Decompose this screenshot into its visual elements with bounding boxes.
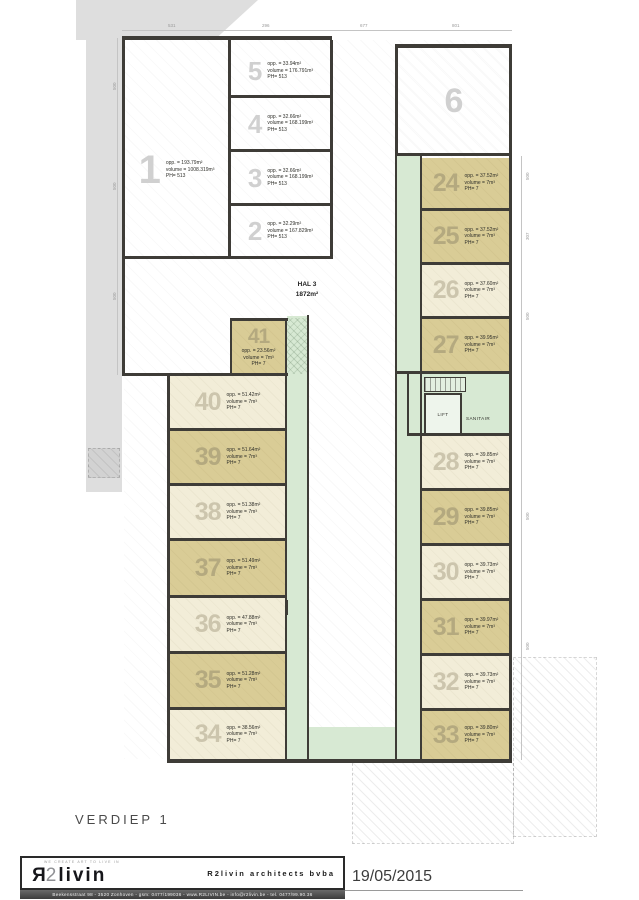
unit-36-spec-line: volume = 7m³ [227,621,261,628]
unit-34-spec-line: volume = 7m³ [227,731,261,738]
unit-31-specs: opp. = 39.97m²volume = 7m³PH= 7 [465,617,499,637]
dim-line-top [122,30,512,31]
unit-37-spec-line: opp. = 51.49m² [227,558,261,565]
dim-top-label: 531 [168,23,176,28]
unit-37-room: 37opp. = 51.49m²volume = 7m³PH= 7 [170,541,285,595]
unit-38-number: 38 [195,500,221,525]
stair-left-corridor [287,318,308,374]
lift-label: LIFT [437,412,448,417]
unit-38-specs: opp. = 51.38m²volume = 7m³PH= 7 [227,502,261,522]
unit-5-room: 5opp. = 33.94m²volume = 176.791m³PH= 513 [231,47,330,95]
unit-24-spec-line: opp. = 37.52m² [465,173,499,180]
unit-25-specs: opp. = 37.52m²volume = 7m³PH= 7 [465,227,499,247]
logo-letter-r: R [30,866,46,885]
unit-32-spec-line: PH= 7 [465,685,499,692]
unit-33-spec-line: opp. = 39.80m² [465,725,499,732]
unit-32-number: 32 [433,670,459,695]
unit-36-number: 36 [195,612,221,637]
unit-34-number: 34 [195,722,221,747]
unit-4-spec-line: PH= 513 [267,127,313,134]
wall-segment [509,44,512,763]
unit-32-spec-line: opp. = 39.73m² [465,672,499,679]
unit-33-spec-line: PH= 7 [465,738,499,745]
wall-segment [330,40,333,259]
wall-segment [167,707,287,710]
unit-5-spec-line: PH= 513 [267,74,313,81]
address-strip: Beekensstraat 98 - 3520 Zonhoven - gsm: … [20,890,345,899]
unit-41-room: 41opp. = 23.56m²volume = 7m³PH= 7 [232,321,285,373]
logo-letter-2: 2 [46,865,59,886]
dim-left-label: 500 [112,292,117,300]
unit-24-specs: opp. = 37.52m²volume = 7m³PH= 7 [465,173,499,193]
unit-35-spec-line: volume = 7m³ [227,677,261,684]
hall-name: HAL 3 [262,280,352,290]
unit-34-spec-line: PH= 7 [227,738,261,745]
wall-segment [420,598,512,601]
unit-28-spec-line: opp. = 39.85m² [465,452,499,459]
unit-29-number: 29 [433,505,459,530]
firm-logo: WE CREATE ART TO LIVE IN R2livin [30,861,120,885]
unit-38-room: 38opp. = 51.38m²volume = 7m³PH= 7 [170,486,285,538]
unit-32-specs: opp. = 39.73m²volume = 7m³PH= 7 [465,672,499,692]
unit-25-number: 25 [433,224,459,249]
unit-1-specs: opp. = 193.79m²volume = 1008.319m³PH= 51… [166,160,215,180]
unit-39-spec-line: opp. = 51.64m² [227,447,261,454]
unit-2-number: 2 [248,218,261,244]
unit-6-number: 6 [445,84,463,118]
unit-40-number: 40 [195,390,221,415]
unit-4-specs: opp. = 32.66m²volume = 168.199m³PH= 513 [267,114,313,134]
corridor-right [396,156,421,762]
wall-segment [167,651,287,654]
unit-40-specs: opp. = 51.42m²volume = 7m³PH= 7 [227,392,261,412]
unit-37-number: 37 [195,556,221,581]
unit-27-spec-line: PH= 7 [465,348,499,355]
wall-segment [167,373,170,763]
dim-top-label: 296 [262,23,270,28]
logo-rest: livin [58,865,106,886]
unit-39-number: 39 [195,445,221,470]
drawing-date: 19/05/2015 [352,868,432,886]
unit-38-spec-line: PH= 7 [227,515,261,522]
unit-33-number: 33 [433,723,459,748]
unit-32-room: 32opp. = 39.73m²volume = 7m³PH= 7 [422,656,509,708]
hall-label: HAL 3 1872m² [262,280,352,300]
unit-30-number: 30 [433,560,459,585]
logo-wordmark: R2livin [30,866,120,885]
unit-39-specs: opp. = 51.64m²volume = 7m³PH= 7 [227,447,261,467]
unit-1-room: 1opp. = 193.79m²volume = 1008.319m³PH= 5… [125,40,228,256]
unit-3-room: 3opp. = 32.66m²volume = 168.199m³PH= 513 [231,152,330,203]
unit-29-room: 29opp. = 39.85m²volume = 7m³PH= 7 [422,491,509,543]
wall-segment [395,155,397,763]
dim-right-label: 500 [525,642,530,650]
corridor-left [287,316,308,763]
unit-27-spec-line: opp. = 39.95m² [465,335,499,342]
unit-1-spec-line: PH= 513 [166,173,215,180]
unit-41-spec-line: PH= 7 [242,361,276,368]
unit-29-spec-line: PH= 7 [465,520,499,527]
unit-39-room: 39opp. = 51.64m²volume = 7m³PH= 7 [170,431,285,483]
wall-segment [228,36,231,259]
unit-30-specs: opp. = 39.73m²volume = 7m³PH= 7 [465,562,499,582]
wall-segment [167,428,287,431]
unit-26-number: 26 [433,278,459,303]
wall-segment [167,538,287,541]
lift-shaft: LIFT [424,393,462,435]
unit-37-specs: opp. = 51.49m²volume = 7m³PH= 7 [227,558,261,578]
wall-segment [285,318,287,763]
unit-2-specs: opp. = 32.29m²volume = 167.829m³PH= 513 [267,221,313,241]
wall-segment [420,316,512,319]
unit-1-number: 1 [139,150,160,190]
dim-right-label: 500 [525,312,530,320]
unit-25-spec-line: volume = 7m³ [465,233,499,240]
unit-37-spec-line: PH= 7 [227,571,261,578]
dim-top-label: 677 [360,23,368,28]
unit-33-room: 33opp. = 39.80m²volume = 7m³PH= 7 [422,711,509,759]
unit-27-specs: opp. = 39.95m²volume = 7m³PH= 7 [465,335,499,355]
unit-35-spec-line: PH= 7 [227,684,261,691]
wall-segment [167,759,512,763]
unit-36-spec-line: PH= 7 [227,628,261,635]
unit-31-spec-line: opp. = 39.97m² [465,617,499,624]
corridor-bottom [308,727,396,761]
unit-28-room: 28opp. = 39.85m²volume = 7m³PH= 7 [422,436,509,488]
unit-41-specs: opp. = 23.56m²volume = 7m³PH= 7 [242,348,276,368]
unit-26-spec-line: volume = 7m³ [465,287,499,294]
unit-34-room: 34opp. = 38.56m²volume = 7m³PH= 7 [170,710,285,759]
dim-line-right [521,156,522,760]
unit-28-specs: opp. = 39.85m²volume = 7m³PH= 7 [465,452,499,472]
wall-segment [407,433,512,436]
unit-30-spec-line: opp. = 39.73m² [465,562,499,569]
wall-segment [228,149,332,152]
dim-top-label: 801 [452,23,460,28]
unit-40-spec-line: opp. = 51.42m² [227,392,261,399]
unit-35-room: 35opp. = 51.28m²volume = 7m³PH= 7 [170,654,285,707]
unit-39-spec-line: PH= 7 [227,460,261,467]
firm-name: R2livin architects bvba [207,869,335,878]
unit-31-number: 31 [433,615,459,640]
unit-26-specs: opp. = 37.60m²volume = 7m³PH= 7 [465,281,499,301]
unit-30-room: 30opp. = 39.73m²volume = 7m³PH= 7 [422,546,509,598]
wall-segment [420,155,422,763]
unit-4-number: 4 [248,111,261,137]
address-text: Beekensstraat 98 - 3520 Zonhoven - gsm: … [52,892,312,897]
unit-3-spec-line: volume = 168.199m³ [267,174,313,181]
floorplan-page: LIFT SANITAIR 1opp. = 193.79m²volume = 1… [0,0,639,900]
unit-35-number: 35 [195,668,221,693]
unit-3-spec-line: PH= 513 [267,181,313,188]
wall-segment [395,371,512,374]
unit-27-number: 27 [433,333,459,358]
wall-segment [122,36,125,376]
wall-segment [167,595,287,598]
dim-right-label: 500 [525,512,530,520]
wall-segment [420,262,512,265]
dim-left-label: 500 [112,182,117,190]
wall-segment [122,373,288,376]
wall-segment [420,488,512,491]
wall-segment [420,543,512,546]
unit-35-specs: opp. = 51.28m²volume = 7m³PH= 7 [227,671,261,691]
unit-41-number: 41 [248,326,269,347]
dim-right-label: 307 [525,232,530,240]
unit-25-room: 25opp. = 37.52m²volume = 7m³PH= 7 [422,211,509,262]
title-block: WE CREATE ART TO LIVE IN R2livin R2livin… [20,856,345,890]
unit-40-spec-line: PH= 7 [227,405,261,412]
adjacent-detail-box [88,448,120,478]
wall-segment [407,371,409,435]
unit-5-specs: opp. = 33.94m²volume = 176.791m³PH= 513 [267,61,313,81]
wall-segment [122,36,332,40]
dim-left-label: 500 [112,82,117,90]
unit-3-specs: opp. = 32.66m²volume = 168.199m³PH= 513 [267,168,313,188]
wall-segment [395,44,512,48]
unit-28-spec-line: PH= 7 [465,465,499,472]
unit-29-specs: opp. = 39.85m²volume = 7m³PH= 7 [465,507,499,527]
unit-26-room: 26opp. = 37.60m²volume = 7m³PH= 7 [422,265,509,316]
unit-5-number: 5 [248,58,261,84]
site-hatch-right [513,657,597,837]
site-hatch-bottom [352,763,514,844]
unit-24-number: 24 [433,171,459,196]
unit-41-spec-line: opp. = 23.56m² [242,348,276,355]
unit-27-room: 27opp. = 39.95m²volume = 7m³PH= 7 [422,319,509,371]
date-underline [345,890,523,891]
wall-segment [230,318,232,376]
wall-segment [420,708,512,711]
unit-24-room: 24opp. = 37.52m²volume = 7m³PH= 7 [422,158,509,208]
unit-4-spec-line: volume = 168.199m³ [267,120,313,127]
unit-6-room: 6 [398,48,509,153]
dim-right-label: 500 [525,172,530,180]
floor-title: VERDIEP 1 [75,812,170,827]
sanitair-label: SANITAIR [466,416,490,421]
stair-lobby [424,377,466,392]
dim-line-left [117,38,118,375]
wall-segment [420,653,512,656]
unit-36-specs: opp. = 47.88m²volume = 7m³PH= 7 [227,615,261,635]
unit-26-spec-line: PH= 7 [465,294,499,301]
unit-2-spec-line: PH= 513 [267,234,313,241]
unit-31-room: 31opp. = 39.97m²volume = 7m³PH= 7 [422,601,509,653]
wall-segment [420,208,512,211]
unit-40-room: 40opp. = 51.42m²volume = 7m³PH= 7 [170,376,285,428]
unit-29-spec-line: opp. = 39.85m² [465,507,499,514]
wall-segment [167,483,287,486]
unit-31-spec-line: PH= 7 [465,630,499,637]
unit-3-number: 3 [248,165,261,191]
wall-segment [228,203,332,206]
unit-24-spec-line: PH= 7 [465,186,499,193]
unit-36-room: 36opp. = 47.88m²volume = 7m³PH= 7 [170,598,285,651]
unit-28-number: 28 [433,450,459,475]
unit-38-spec-line: opp. = 51.38m² [227,502,261,509]
unit-2-room: 2opp. = 32.29m²volume = 167.829m³PH= 513 [231,206,330,256]
hall-area: 1872m² [262,290,352,300]
wall-segment [307,315,309,763]
wall-segment [395,153,512,156]
wall-segment [395,44,398,156]
unit-33-specs: opp. = 39.80m²volume = 7m³PH= 7 [465,725,499,745]
unit-25-spec-line: PH= 7 [465,240,499,247]
wall-segment [230,318,288,321]
wall-segment [228,95,332,98]
unit-4-room: 4opp. = 32.66m²volume = 168.199m³PH= 513 [231,98,330,149]
unit-34-specs: opp. = 38.56m²volume = 7m³PH= 7 [227,725,261,745]
unit-30-spec-line: PH= 7 [465,575,499,582]
